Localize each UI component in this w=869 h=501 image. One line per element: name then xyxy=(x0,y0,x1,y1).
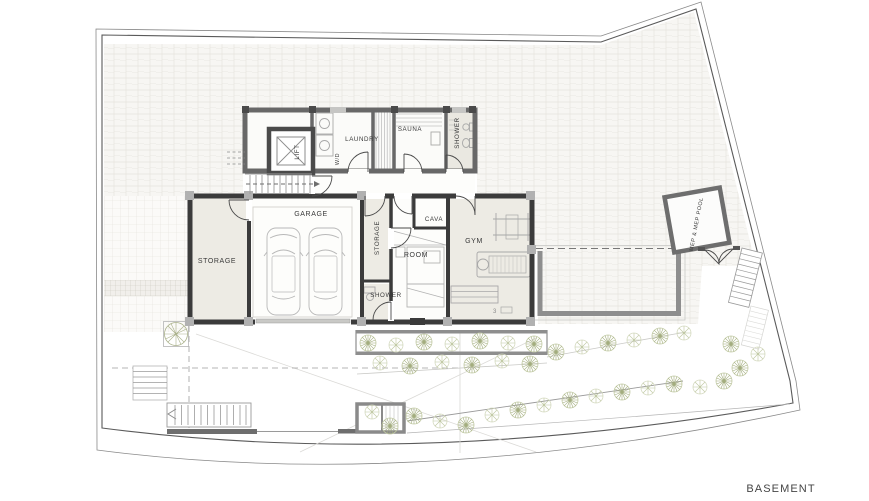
plant-icon xyxy=(575,340,589,354)
plant-icon xyxy=(641,381,655,395)
retaining-wall xyxy=(338,429,356,434)
plant-icon xyxy=(732,360,748,376)
label-laundry: LAUNDRY xyxy=(345,136,379,143)
label-shower-top: SHOWER xyxy=(454,117,461,148)
floor-plan: STORAGE GARAGE STORAGE SHOWER CAVA ROOM … xyxy=(0,0,869,501)
plant-icon xyxy=(510,402,526,418)
plan-title: BASEMENT xyxy=(746,483,815,495)
plant-icon xyxy=(458,417,474,433)
plant-icon xyxy=(693,380,707,394)
entry-stair-structure xyxy=(357,404,404,432)
plant-icon xyxy=(365,405,379,419)
lift-shaft xyxy=(269,129,313,173)
label-gym: GYM xyxy=(465,238,483,245)
plant-icon xyxy=(406,408,422,424)
tiled-path xyxy=(104,280,190,296)
ramp xyxy=(167,403,251,427)
label-sauna: SAUNA xyxy=(398,126,423,133)
plant-icon xyxy=(677,326,691,340)
plant-icon xyxy=(600,335,616,351)
plant-icon xyxy=(589,389,603,403)
label-garage: GARAGE xyxy=(294,211,328,218)
plant-icon xyxy=(501,336,515,350)
planting-strips xyxy=(356,326,790,434)
walkway-left xyxy=(104,112,243,196)
garage-door xyxy=(256,319,350,323)
room-shower-top xyxy=(448,110,474,170)
plant-icon xyxy=(716,373,732,389)
label-wd: W/D xyxy=(335,153,341,165)
label-room: ROOM xyxy=(404,252,428,259)
room-gym xyxy=(450,198,531,321)
threshold xyxy=(410,318,425,325)
hallway xyxy=(312,172,475,196)
plant-icon xyxy=(472,333,488,349)
plant-icon xyxy=(433,414,447,428)
plant-icon xyxy=(382,418,398,434)
plant-icon xyxy=(562,392,578,408)
label-cava: CAVA xyxy=(425,216,444,223)
label-storage-left: STORAGE xyxy=(198,258,236,265)
plant-icon xyxy=(402,358,418,374)
plant-icon xyxy=(495,354,509,368)
plant-icon xyxy=(435,355,449,369)
plant-icon xyxy=(614,384,630,400)
plant-icon xyxy=(652,328,668,344)
plant-icon xyxy=(416,334,432,350)
terrace-left xyxy=(104,196,190,332)
plant-icon xyxy=(537,398,551,412)
plant-icon xyxy=(485,408,499,422)
plant-icon xyxy=(723,336,739,352)
retaining-wall xyxy=(167,429,257,434)
plant-icon xyxy=(548,344,564,360)
plant-icon xyxy=(666,376,682,392)
plant-icon xyxy=(522,356,538,372)
label-lift: LIFT xyxy=(294,144,301,159)
label-shower-small: SHOWER xyxy=(370,292,401,299)
exterior-steps xyxy=(133,366,167,400)
plant-icon xyxy=(373,356,387,370)
label-storage-mid: STORAGE xyxy=(374,221,381,255)
plant-icon xyxy=(389,338,403,352)
plant-icon xyxy=(464,357,480,373)
plant-icon xyxy=(360,335,376,351)
floor-plan-drawing: STORAGE GARAGE STORAGE SHOWER CAVA ROOM … xyxy=(0,0,869,501)
plant-icon xyxy=(445,337,459,351)
plant-icon xyxy=(627,333,641,347)
label-gym-note: 3 xyxy=(493,309,497,315)
plant-icon xyxy=(526,336,542,352)
